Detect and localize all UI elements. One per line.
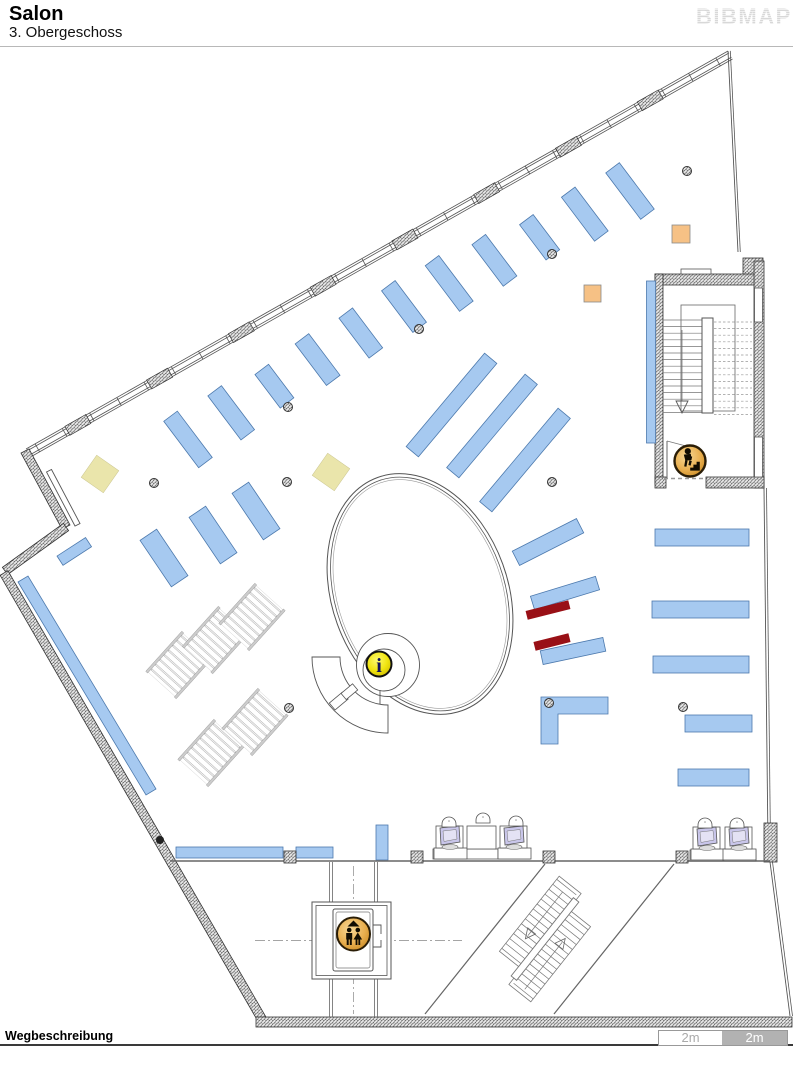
svg-text:i: i <box>376 655 382 677</box>
